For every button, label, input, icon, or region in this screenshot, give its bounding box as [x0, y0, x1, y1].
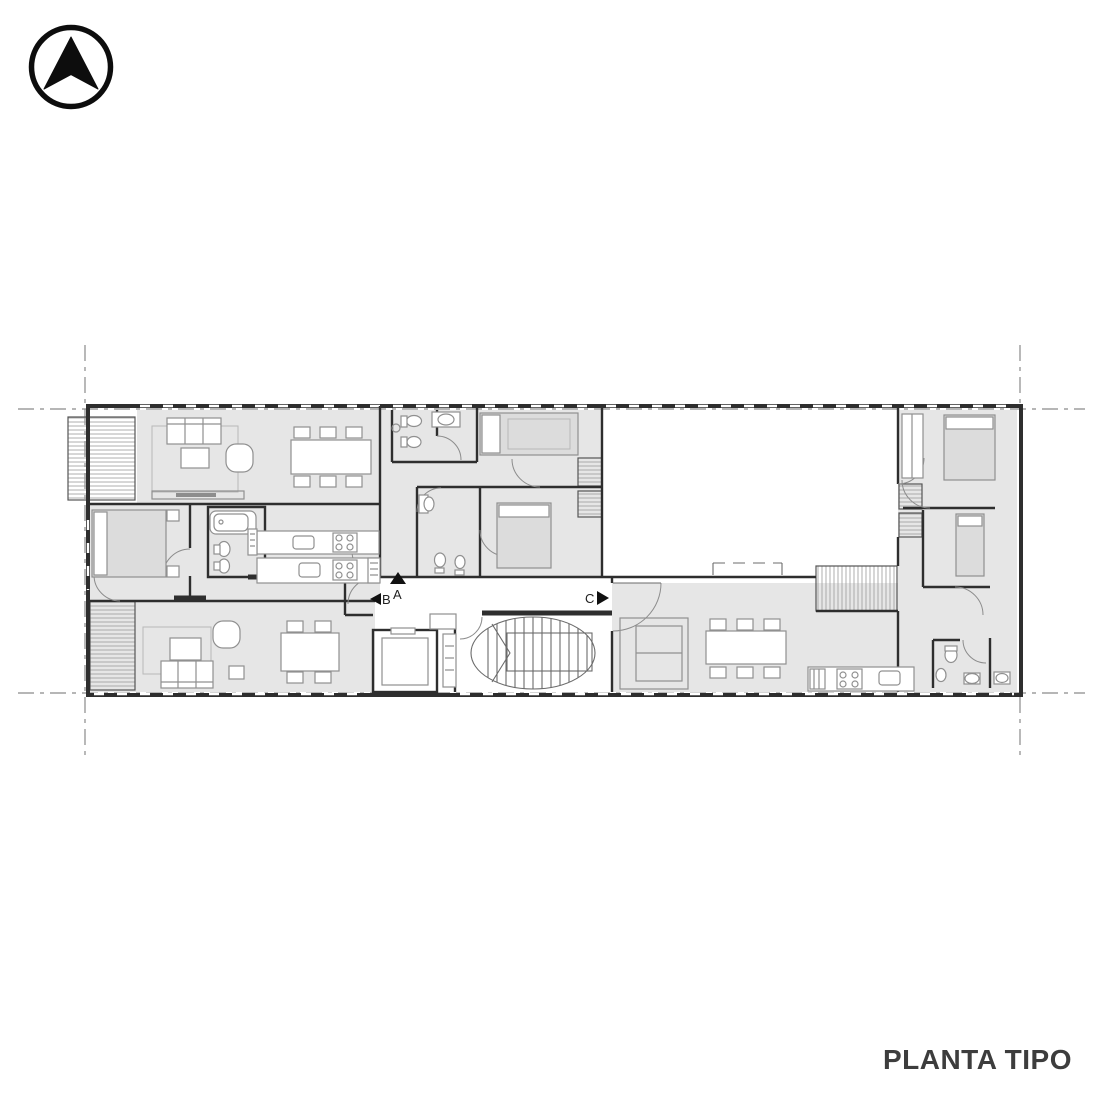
dining-table [291, 427, 371, 487]
bed-right-top [944, 415, 995, 480]
balcony-top-left [68, 417, 135, 500]
balcony-bottom-left [90, 601, 135, 690]
bedroom-top-center [480, 413, 578, 455]
coffee-table [170, 638, 201, 660]
deck-right [816, 566, 897, 611]
page: A B C PLANTA TIPO [0, 0, 1100, 1100]
bed-left [92, 510, 179, 577]
kitchen-right [808, 667, 914, 691]
marker-c-triangle-icon [597, 591, 609, 605]
bedroom-middle [497, 503, 551, 568]
sofa [167, 418, 221, 444]
window-strip [578, 491, 602, 517]
side-table [229, 666, 244, 679]
floor-plan: A B C [0, 0, 1100, 1100]
sink [879, 671, 900, 685]
bed-right-middle [956, 514, 984, 576]
plan-title: PLANTA TIPO [883, 1044, 1072, 1076]
stove [333, 560, 357, 580]
sofa [161, 661, 213, 688]
elevator [373, 614, 456, 692]
armchair [213, 621, 240, 648]
stove [837, 669, 862, 689]
bidet [455, 556, 465, 569]
bidet [407, 437, 421, 448]
marker-c-label: C [585, 591, 594, 606]
laundry-right [994, 672, 1010, 684]
armchair [226, 444, 253, 472]
toilet [407, 416, 422, 427]
marker-b-label: B [382, 592, 391, 607]
coffee-table [181, 448, 209, 468]
toilet [435, 553, 446, 567]
dining-table [706, 619, 786, 678]
circulation-core [373, 614, 595, 692]
fridge [810, 669, 825, 689]
section-marker-c: C [585, 591, 609, 606]
sink [293, 536, 314, 549]
vanity [964, 673, 980, 684]
stove [333, 533, 357, 552]
window-strip [578, 458, 602, 486]
marker-a-label: A [393, 587, 402, 602]
sink [299, 563, 320, 577]
stairwell [471, 617, 595, 690]
bidet [936, 669, 946, 682]
window-strip [899, 513, 922, 537]
sink [424, 497, 434, 511]
